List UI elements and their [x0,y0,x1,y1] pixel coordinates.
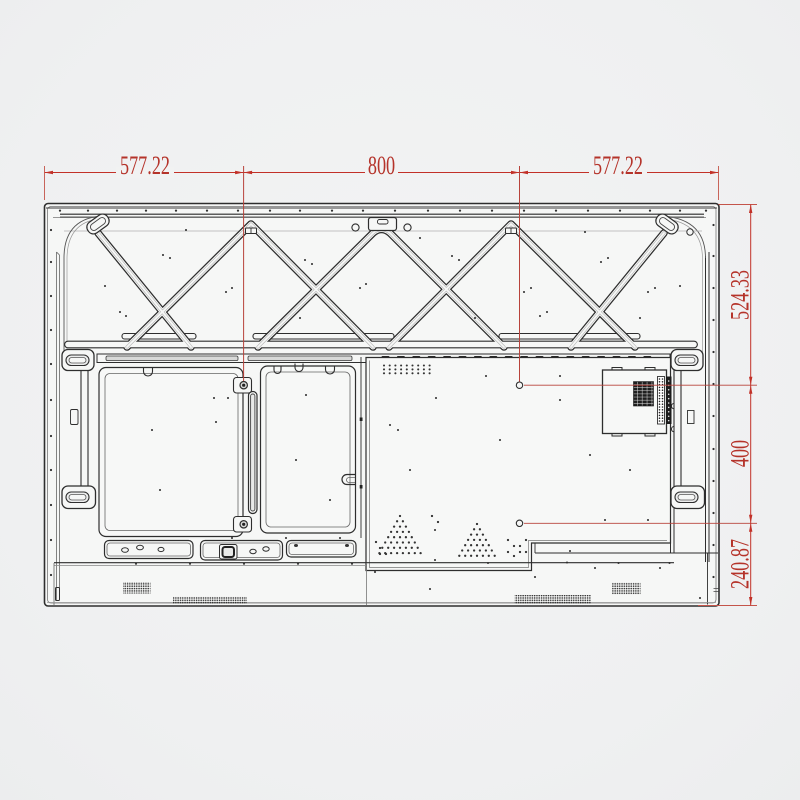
svg-text:577.22: 577.22 [120,151,170,180]
svg-text:800: 800 [368,151,395,180]
svg-text:240.87: 240.87 [725,539,754,589]
svg-text:400: 400 [725,440,754,467]
svg-text:524.33: 524.33 [725,270,754,320]
svg-text:577.22: 577.22 [593,151,643,180]
